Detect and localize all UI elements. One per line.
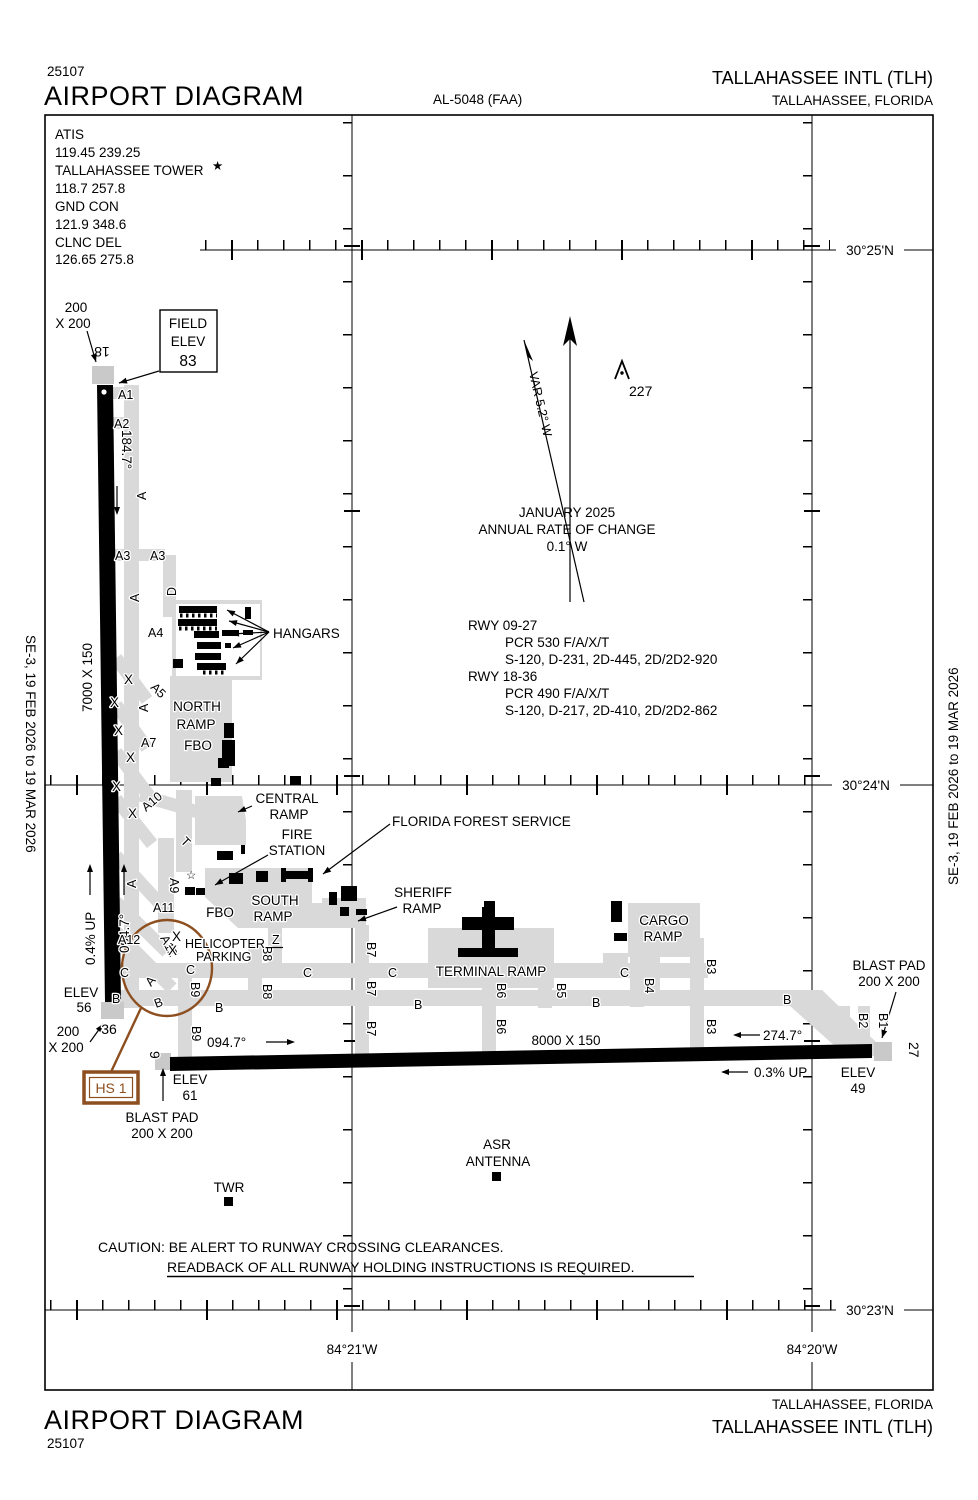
blastpad36-dim-line1: 200: [57, 1024, 80, 1039]
taxiway-label-b7: B7: [364, 1021, 378, 1036]
rate-of-change-value: 0.1° W: [547, 539, 588, 554]
runway-9-elev-label: ELEV: [173, 1072, 208, 1087]
taxiway-label-a: A: [135, 491, 149, 500]
magnetic-variation-label: VAR 5.2° W: [526, 371, 555, 439]
runway-18-36: [97, 385, 121, 1002]
taxiway-label-b4: B4: [642, 978, 656, 993]
rwy0927-label: RWY 09-27: [468, 618, 537, 633]
sheriff-ramp-label-line2: RAMP: [402, 901, 441, 916]
taxiway-label-a5: A5: [148, 680, 169, 701]
north-ramp-label-line2: RAMP: [176, 717, 215, 732]
star-symbol: ☆: [186, 870, 196, 882]
airport-diagram-page: 30°25'N 30°24'N 30°23'N 84°21'W 84°20'W …: [0, 0, 978, 1500]
taxiway-label-a3: A3: [115, 549, 130, 563]
runway-27-elev-value: 49: [850, 1081, 865, 1096]
taxiway-label-b: B: [112, 992, 120, 1006]
sheriff-ramp-label-line1: SHERIFF: [394, 885, 452, 900]
closed-taxiway-x: X: [126, 750, 135, 765]
airport-diagram-canvas: 30°25'N 30°24'N 30°23'N 84°21'W 84°20'W …: [0, 0, 978, 1500]
closed-taxiway-x: X: [112, 779, 121, 794]
taxiway-label-b6: B6: [494, 983, 508, 998]
taxiway-label-c: C: [303, 966, 312, 980]
field-elev-line2: ELEV: [171, 334, 206, 349]
comm-box: ATIS 119.45 239.25 TALLAHASSEE TOWER ★ 1…: [55, 127, 223, 267]
ground-label: GND CON: [55, 199, 119, 214]
hangars-label: HANGARS: [273, 626, 340, 641]
helicopter-parking-label-line2: PARKING: [196, 950, 251, 964]
taxiway-label-a12: A12: [118, 933, 140, 947]
taxiway-label-b1: B1: [876, 1013, 890, 1028]
hotspot-label: HS 1: [95, 1080, 126, 1096]
fbo-north-label: FBO: [184, 738, 212, 753]
field-elev-line1: FIELD: [169, 316, 208, 331]
runway-36-elev-label: ELEV: [64, 985, 99, 1000]
runway-9-heading: 094.7°: [207, 1035, 246, 1050]
tower-star-icon: ★: [212, 159, 223, 173]
taxiway-label-a11: A11: [153, 901, 174, 915]
tower-frequency: 118.7 257.8: [55, 181, 125, 196]
clearance-label: CLNC DEL: [55, 235, 122, 250]
taxiway-label-b8: B8: [260, 984, 274, 999]
rate-of-change-label: ANNUAL RATE OF CHANGE: [478, 522, 655, 537]
taxiway-label-c: C: [120, 966, 129, 980]
tower-building: [224, 1197, 233, 1206]
taxiway-label-a3: A3: [150, 549, 165, 563]
rwy1836-label: RWY 18-36: [468, 669, 537, 684]
fire-station-label-line1: FIRE: [282, 827, 313, 842]
taxiway-label-a: A: [128, 593, 142, 602]
longitude-label-8421: 84°21'W: [327, 1342, 378, 1357]
rwy0927-pcr: PCR 530 F/A/X/T: [505, 635, 609, 650]
taxiway-label-b5: B5: [554, 983, 568, 998]
blastpad18-dim-line2: X 200: [55, 316, 90, 331]
atis-frequency: 119.45 239.25: [55, 145, 140, 160]
tower-label-map: TWR: [214, 1180, 245, 1195]
footer: AIRPORT DIAGRAM 25107 TALLAHASSEE, FLORI…: [44, 1397, 933, 1451]
runway-1836-gradient: 0.4% UP: [83, 912, 98, 965]
chart-number-top: 25107: [47, 64, 85, 79]
caution-line2: READBACK OF ALL RUNWAY HOLDING INSTRUCTI…: [167, 1259, 635, 1275]
taxiway-label-a7: A7: [141, 736, 156, 750]
runway-36-number: 36: [101, 1021, 117, 1037]
runway-0927-dimensions: 8000 X 150: [531, 1033, 600, 1048]
caution-note: CAUTION: BE ALERT TO RUNWAY CROSSING CLE…: [98, 1239, 694, 1277]
latitude-label-3025: 30°25'N: [846, 243, 894, 258]
taxiway-label-b2: B2: [856, 1013, 870, 1028]
taxiway-label-a4: A4: [148, 626, 163, 640]
runway-18-heading: 184.7°: [119, 430, 134, 469]
taxiway-label-c: C: [186, 963, 195, 977]
taxiway-label-b3: B3: [704, 959, 718, 974]
taxiway-label-a1: A1: [118, 388, 133, 402]
taxiway-label-b: B: [215, 1001, 223, 1015]
asr-antenna-site: [492, 1172, 501, 1181]
runway-18-threshold-dot: [101, 389, 106, 394]
runway-36-elev-value: 56: [76, 1000, 91, 1015]
clearance-frequency: 126.65 275.8: [55, 252, 134, 267]
airport-city-bottom: TALLAHASSEE, FLORIDA: [772, 1397, 933, 1412]
runway-9-number: 9: [147, 1051, 163, 1059]
header: 25107 AIRPORT DIAGRAM AL-5048 (FAA) TALL…: [44, 64, 933, 111]
taxiway-label-d: D: [165, 587, 179, 596]
runway-1836-dimensions: 7000 X 150: [80, 643, 95, 712]
florida-forest-service-label: FLORIDA FOREST SERVICE: [392, 814, 571, 829]
cargo-ramp-label-line2: RAMP: [643, 929, 682, 944]
taxiway-label-a9: A9: [167, 878, 181, 893]
runway-27-number: 27: [906, 1042, 922, 1058]
taxiway-label-b7: B7: [364, 981, 378, 996]
closed-taxiway-x: X: [114, 723, 123, 738]
longitude-label-8420: 84°20'W: [787, 1342, 838, 1357]
procedure-id: AL-5048 (FAA): [433, 92, 522, 107]
atis-label: ATIS: [55, 127, 84, 142]
blastpad9-label-line1: BLAST PAD: [125, 1110, 198, 1125]
taxiway-label-b9: B9: [188, 982, 202, 997]
central-ramp-label-line1: CENTRAL: [255, 791, 319, 806]
runway-27-heading: 274.7°: [763, 1028, 802, 1043]
cargo-ramp-label-line1: CARGO: [639, 913, 689, 928]
compass-rose: VAR 5.2° W JANUARY 2025 ANNUAL RATE OF C…: [478, 316, 655, 602]
obstruction-elevation: 227: [629, 383, 653, 399]
page-title-bottom: AIRPORT DIAGRAM: [44, 1405, 304, 1435]
field-elevation-box: FIELD ELEV 83: [160, 310, 217, 372]
taxiway-label-a: A: [125, 879, 139, 888]
edition-date-left: SE-3, 19 FEB 2026 to 19 MAR 2026: [23, 635, 38, 853]
runway-18-number: 18: [94, 344, 110, 360]
asr-label-line2: ANTENNA: [466, 1154, 531, 1169]
field-elev-value: 83: [179, 353, 196, 370]
taxiway-label-a: A: [137, 703, 151, 712]
runway-0927-gradient: 0.3% UP: [754, 1065, 807, 1080]
closed-taxiway-x: X: [124, 672, 133, 687]
page-title-top: AIRPORT DIAGRAM: [44, 81, 304, 111]
taxiway-label-a2: A2: [114, 417, 129, 431]
helicopter-parking-label-line1: HELICOPTER: [185, 937, 265, 951]
edition-date-right: SE-3, 19 FEB 2026 to 19 MAR 2026: [946, 667, 961, 885]
central-ramp-area: [195, 796, 246, 845]
fire-station-label-line2: STATION: [269, 843, 326, 858]
airport-name-top: TALLAHASSEE INTL (TLH): [712, 68, 933, 88]
helicopter-parking-x: X: [172, 929, 181, 944]
helicopter-parking-x: X: [168, 943, 177, 958]
south-ramp-label-line1: SOUTH: [251, 893, 298, 908]
terminal-ramp-label: TERMINAL RAMP: [436, 964, 547, 979]
taxiway-label-b6: B6: [494, 1019, 508, 1034]
runway-data-block: RWY 09-27 PCR 530 F/A/X/T S-120, D-231, …: [468, 618, 717, 718]
tower-label: TALLAHASSEE TOWER: [55, 163, 204, 178]
latitude-label-3024: 30°24'N: [842, 778, 890, 793]
taxiway-label-c: C: [620, 966, 629, 980]
taxiway-label-b: B: [592, 996, 600, 1010]
taxiway-label-b9: B9: [189, 1026, 203, 1041]
south-ramp-label-line2: RAMP: [253, 909, 292, 924]
taxiway-label-b3: B3: [704, 1019, 718, 1034]
airport-city-top: TALLAHASSEE, FLORIDA: [772, 93, 933, 108]
taxiway-label-c: C: [388, 966, 397, 980]
latitude-label-3023: 30°23'N: [846, 1303, 894, 1318]
caution-line1: CAUTION: BE ALERT TO RUNWAY CROSSING CLE…: [98, 1239, 504, 1255]
taxiway-label-b: B: [414, 998, 422, 1012]
rwy0927-strength: S-120, D-231, 2D-445, 2D/2D2-920: [505, 652, 717, 667]
rwy1836-strength: S-120, D-217, 2D-410, 2D/2D2-862: [505, 703, 717, 718]
blastpad27-label-line1: BLAST PAD: [852, 958, 925, 973]
taxiway-label-z: Z: [272, 933, 280, 947]
taxiway-label-b7: B7: [364, 942, 378, 957]
runway-27-elev-label: ELEV: [841, 1065, 876, 1080]
blastpad36-dim-line2: X 200: [48, 1040, 83, 1055]
ground-frequency: 121.9 348.6: [55, 217, 126, 232]
closed-taxiway-x: X: [110, 695, 119, 710]
rwy1836-pcr: PCR 490 F/A/X/T: [505, 686, 609, 701]
north-ramp-label-line1: NORTH: [173, 699, 221, 714]
fbo-south-label: FBO: [206, 905, 234, 920]
airport-name-bottom: TALLAHASSEE INTL (TLH): [712, 1417, 933, 1437]
chart-number-bottom: 25107: [47, 1436, 85, 1451]
central-ramp-label-line2: RAMP: [269, 807, 308, 822]
blastpad9-label-line2: 200 X 200: [131, 1126, 193, 1141]
closed-taxiway-x: X: [128, 806, 137, 821]
asr-label-line1: ASR: [483, 1137, 511, 1152]
blastpad27-label-line2: 200 X 200: [858, 974, 920, 989]
obstruction-symbol: 227: [615, 361, 653, 399]
runway-9-elev-value: 61: [182, 1088, 197, 1103]
blastpad18-dim-line1: 200: [65, 300, 88, 315]
variation-date: JANUARY 2025: [519, 505, 615, 520]
taxiway-label-b: B: [783, 993, 791, 1007]
